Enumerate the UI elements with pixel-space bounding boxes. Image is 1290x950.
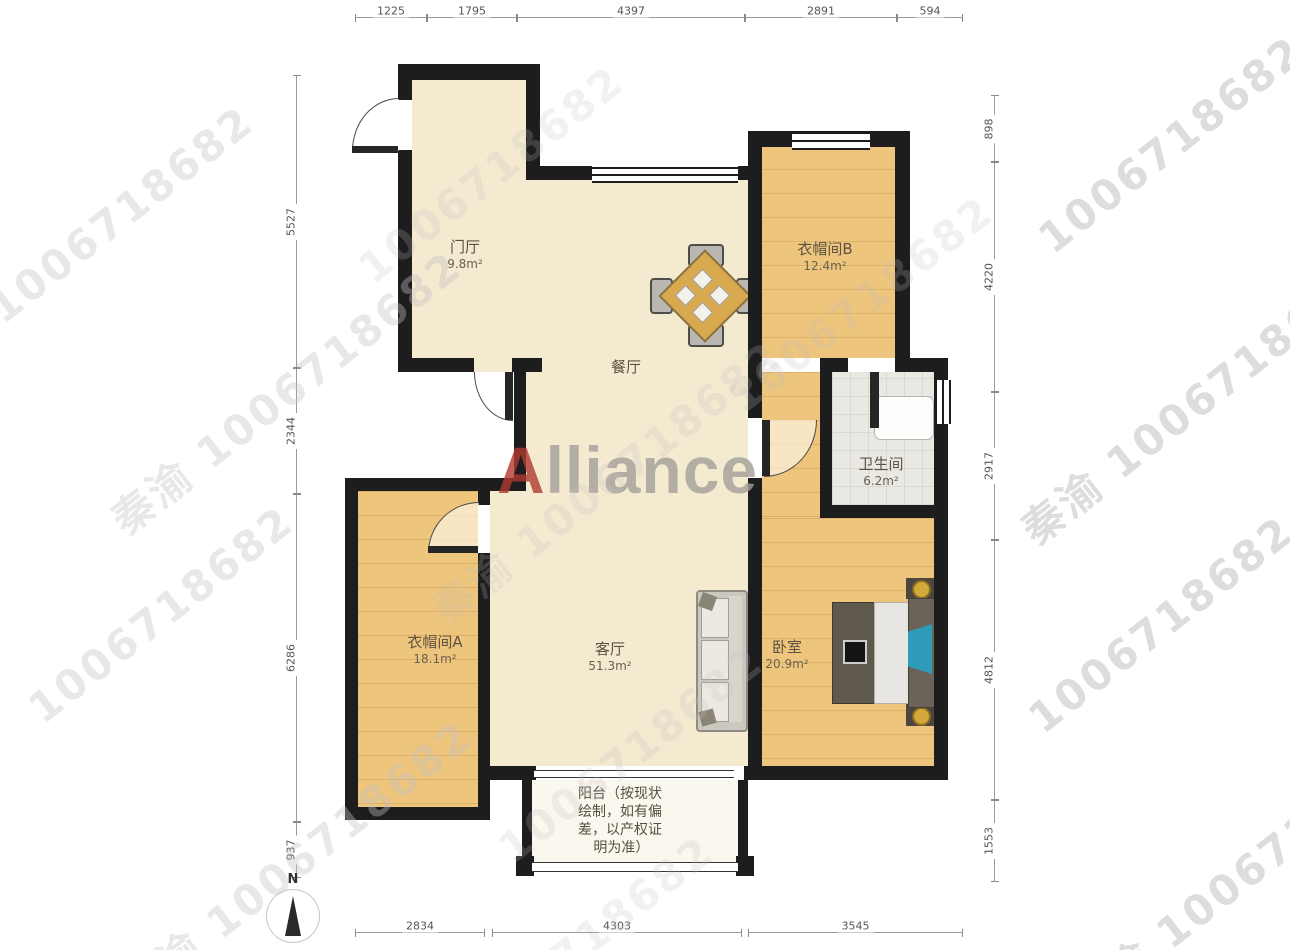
dim-value: 2917 bbox=[983, 448, 996, 484]
wall bbox=[398, 358, 474, 372]
watermark-text: 1006718682 bbox=[1029, 26, 1290, 263]
room-name: 卧室 bbox=[752, 638, 822, 657]
dim-value: 1225 bbox=[373, 5, 409, 18]
bed-throw-teal bbox=[908, 624, 932, 674]
dim-value: 2834 bbox=[402, 920, 438, 933]
wall bbox=[820, 358, 848, 372]
wall bbox=[820, 505, 948, 518]
alliance-logo-rest: lliance bbox=[546, 433, 758, 507]
floor-plan-canvas: 1006718682 秦渝 1006718682 1006718682 秦渝 1… bbox=[0, 0, 1290, 950]
nightstand-lamp bbox=[912, 707, 931, 726]
room-label-dining: 餐厅 bbox=[586, 358, 666, 377]
balcony-note-line: 阳台（按现状 bbox=[578, 786, 698, 804]
dim-value: 4303 bbox=[599, 920, 635, 933]
room-area: 51.3m² bbox=[570, 659, 650, 674]
compass-needle-icon bbox=[285, 896, 301, 936]
nightstand-lamp bbox=[912, 580, 931, 599]
wall bbox=[748, 131, 762, 418]
dim-right-1: 898 bbox=[994, 95, 995, 162]
dim-value: 2344 bbox=[285, 413, 298, 449]
wall bbox=[398, 64, 540, 80]
dim-left-2: 2344 bbox=[296, 368, 297, 494]
room-name: 卫生间 bbox=[841, 455, 921, 474]
dim-bottom-2: 4303 bbox=[492, 932, 742, 933]
wall bbox=[345, 807, 490, 820]
wall bbox=[744, 766, 948, 780]
dim-value: 937 bbox=[285, 836, 298, 865]
room-area: 12.4m² bbox=[785, 259, 865, 274]
balcony-note-line: 差，以产权证 bbox=[578, 822, 698, 840]
wall bbox=[345, 478, 358, 820]
window bbox=[592, 167, 738, 183]
wall bbox=[398, 64, 412, 100]
wall bbox=[738, 780, 748, 868]
window bbox=[792, 132, 870, 150]
room-name: 衣帽间A bbox=[395, 633, 475, 652]
room-label-cloakroom-b: 衣帽间B 12.4m² bbox=[785, 240, 865, 274]
watermark-text: 秦渝 1006718682 bbox=[1057, 714, 1290, 950]
dim-top-2: 1795 bbox=[427, 17, 517, 18]
dim-value: 3545 bbox=[838, 920, 874, 933]
wall bbox=[895, 131, 910, 372]
dim-value: 898 bbox=[983, 114, 996, 143]
wall bbox=[522, 780, 532, 868]
hall-door bbox=[505, 372, 513, 420]
room-name: 客厅 bbox=[570, 640, 650, 659]
compass-circle bbox=[266, 889, 320, 943]
bed-mattress bbox=[874, 602, 910, 704]
room-label-cloakroom-a: 衣帽间A 18.1m² bbox=[395, 633, 475, 667]
entry-hall-floor bbox=[412, 80, 526, 372]
balcony-window bbox=[532, 862, 738, 872]
watermark-text: 1006718682 bbox=[0, 96, 263, 333]
wall bbox=[736, 856, 754, 876]
dim-value: 1795 bbox=[454, 5, 490, 18]
room-name: 门厅 bbox=[425, 238, 505, 257]
dim-left-3: 6286 bbox=[296, 494, 297, 822]
wall bbox=[526, 64, 540, 180]
sofa-back bbox=[728, 596, 742, 722]
entry-door-arc bbox=[352, 98, 399, 151]
room-label-entry-hall: 门厅 9.8m² bbox=[425, 238, 505, 272]
watermark-text: 1006718682 bbox=[19, 496, 303, 733]
bathroom-door bbox=[870, 372, 879, 428]
room-area: 20.9m² bbox=[752, 657, 822, 672]
dim-right-4: 4812 bbox=[994, 540, 995, 800]
room-area: 6.2m² bbox=[841, 474, 921, 489]
wall bbox=[512, 358, 542, 372]
compass-north-label: N bbox=[266, 872, 320, 887]
dim-top-1: 1225 bbox=[355, 17, 427, 18]
dim-value: 4812 bbox=[983, 652, 996, 688]
dim-value: 2891 bbox=[803, 5, 839, 18]
dim-right-2: 4220 bbox=[994, 162, 995, 392]
dim-left-1: 5527 bbox=[296, 75, 297, 368]
watermark-text: 1006718682 bbox=[1019, 506, 1290, 743]
room-name: 衣帽间B bbox=[785, 240, 865, 259]
dim-bottom-1: 2834 bbox=[355, 932, 485, 933]
balcony-note-line: 绘制，如有偏 bbox=[578, 804, 698, 822]
compass: N bbox=[266, 872, 320, 943]
room-label-bedroom: 卧室 20.9m² bbox=[752, 638, 822, 672]
dim-value: 5527 bbox=[285, 204, 298, 240]
balcony-sliding-window bbox=[534, 770, 734, 778]
dim-value: 594 bbox=[916, 5, 945, 18]
window bbox=[935, 380, 951, 424]
room-label-bathroom: 卫生间 6.2m² bbox=[841, 455, 921, 489]
dim-value: 4397 bbox=[613, 5, 649, 18]
wall bbox=[478, 766, 536, 780]
alliance-logo-letter-a: A bbox=[497, 433, 546, 507]
wall bbox=[820, 372, 832, 518]
dim-value: 6286 bbox=[285, 640, 298, 676]
wall bbox=[748, 478, 762, 780]
bedroom-door bbox=[762, 420, 770, 476]
cloakroom-a-door bbox=[428, 546, 478, 553]
dim-left-4: 937 bbox=[296, 822, 297, 878]
dim-top-5: 594 bbox=[897, 17, 963, 18]
sofa-cushion bbox=[701, 640, 729, 680]
balcony-note-line: 明为准） bbox=[578, 840, 698, 858]
dim-top-3: 4397 bbox=[517, 17, 745, 18]
dim-value: 1553 bbox=[983, 823, 996, 859]
alliance-logo: Alliance bbox=[497, 432, 758, 508]
watermark-text: 秦渝 1006718682 bbox=[1007, 244, 1290, 557]
room-area: 9.8m² bbox=[425, 257, 505, 272]
dim-top-4: 2891 bbox=[745, 17, 897, 18]
wall bbox=[934, 505, 948, 780]
room-label-living: 客厅 51.3m² bbox=[570, 640, 650, 674]
room-area: 18.1m² bbox=[395, 652, 475, 667]
balcony-note: 阳台（按现状 绘制，如有偏 差，以产权证 明为准） bbox=[578, 786, 698, 858]
bathroom-vanity bbox=[874, 396, 934, 440]
dim-value: 4220 bbox=[983, 259, 996, 295]
dim-bottom-3: 3545 bbox=[748, 932, 963, 933]
dim-right-5: 1553 bbox=[994, 800, 995, 882]
living-left-extension-floor bbox=[490, 491, 540, 766]
entry-door bbox=[352, 146, 398, 153]
wall bbox=[478, 491, 490, 505]
wall bbox=[540, 166, 592, 180]
room-name: 餐厅 bbox=[586, 358, 666, 377]
wall bbox=[398, 150, 412, 372]
tv-on-bench bbox=[843, 640, 867, 664]
dim-right-3: 2917 bbox=[994, 392, 995, 540]
